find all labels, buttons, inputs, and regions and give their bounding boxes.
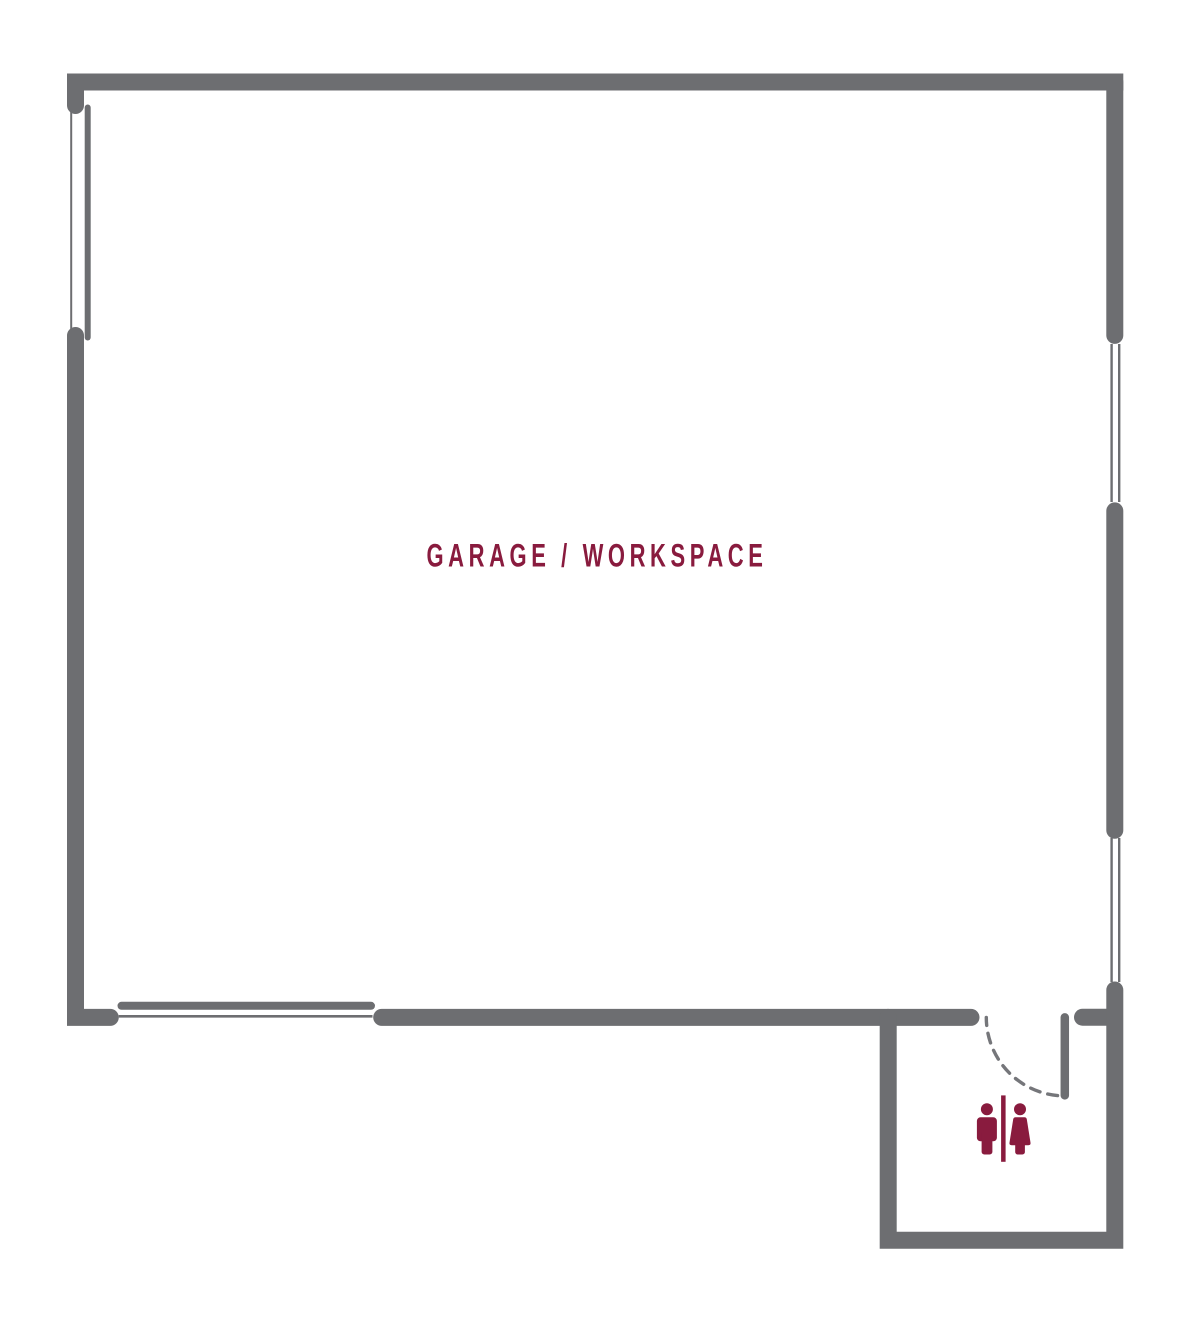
svg-text:GARAGE / WORKSPACE: GARAGE / WORKSPACE bbox=[427, 538, 768, 574]
